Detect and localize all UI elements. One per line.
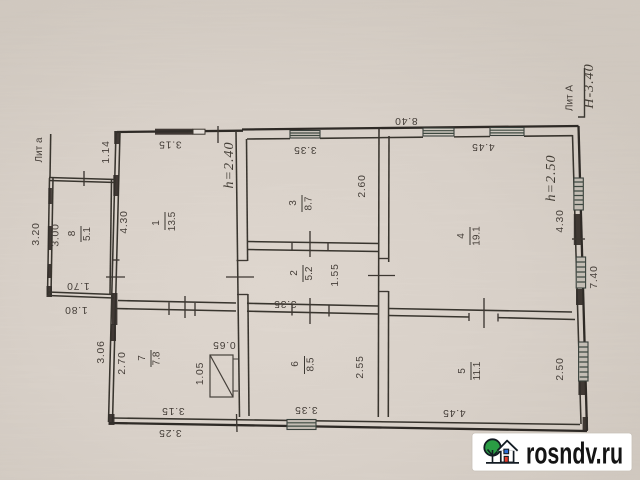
svg-text:1.70: 1.70	[66, 280, 89, 291]
svg-text:5.1: 5.1	[82, 227, 93, 241]
svg-text:3.35: 3.35	[273, 298, 296, 309]
svg-text:8.7: 8.7	[304, 196, 315, 210]
svg-text:Н-3.40: Н-3.40	[582, 63, 597, 109]
svg-text:3.15: 3.15	[158, 139, 181, 150]
svg-text:2: 2	[289, 270, 300, 276]
svg-text:11.1: 11.1	[472, 361, 483, 380]
svg-text:1.55: 1.55	[330, 263, 341, 286]
svg-text:1: 1	[151, 220, 162, 226]
svg-text:7.40: 7.40	[589, 265, 600, 288]
svg-text:1.14: 1.14	[101, 140, 112, 163]
svg-text:1.05: 1.05	[195, 362, 206, 385]
svg-text:rosndv.ru: rosndv.ru	[526, 436, 623, 471]
svg-text:2.55: 2.55	[355, 355, 366, 378]
svg-text:5: 5	[457, 368, 468, 374]
svg-text:h=2.40: h=2.40	[222, 142, 237, 189]
svg-text:4.30: 4.30	[119, 210, 130, 233]
svg-text:3.06: 3.06	[96, 340, 107, 363]
svg-text:0.65: 0.65	[212, 339, 235, 350]
svg-text:3: 3	[288, 200, 299, 206]
svg-text:19.1: 19.1	[472, 226, 483, 246]
svg-text:3.35: 3.35	[294, 404, 317, 415]
svg-text:2.50: 2.50	[555, 357, 566, 380]
svg-text:4.45: 4.45	[442, 407, 465, 418]
svg-text:5.2: 5.2	[304, 266, 315, 280]
svg-text:6: 6	[290, 361, 301, 367]
svg-text:4.30: 4.30	[555, 209, 566, 232]
svg-text:13.5: 13.5	[167, 211, 178, 231]
svg-text:1.80: 1.80	[64, 304, 87, 315]
svg-text:8.40: 8.40	[394, 115, 417, 126]
svg-text:8.5: 8.5	[306, 357, 317, 371]
svg-text:2.60: 2.60	[357, 174, 368, 197]
svg-text:Лит а: Лит а	[34, 137, 45, 163]
svg-text:3.20: 3.20	[31, 222, 42, 245]
svg-text:3.00: 3.00	[51, 223, 62, 246]
svg-text:4: 4	[456, 233, 467, 239]
svg-text:2.70: 2.70	[117, 351, 128, 374]
svg-text:7: 7	[137, 355, 148, 361]
svg-text:3.25: 3.25	[158, 427, 181, 438]
svg-text:Лит А: Лит А	[565, 85, 576, 112]
svg-text:3.15: 3.15	[161, 405, 184, 416]
svg-text:8: 8	[67, 230, 78, 236]
svg-text:3.35: 3.35	[293, 144, 316, 155]
svg-text:h=2.50: h=2.50	[544, 155, 559, 202]
svg-text:7.8: 7.8	[152, 351, 163, 365]
svg-text:4.45: 4.45	[471, 141, 494, 152]
